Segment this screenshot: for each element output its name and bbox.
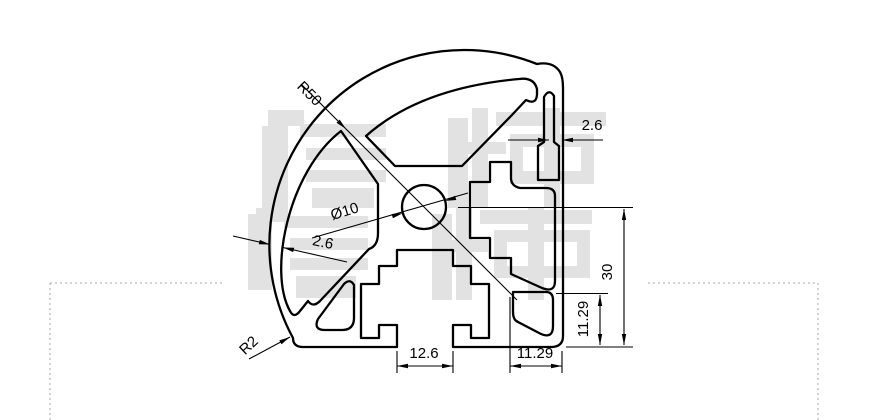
watermark-block [284,216,368,228]
dimension-label-height: 30 [599,264,616,281]
watermark-block [472,108,488,208]
arrow-30-bottom [622,334,626,345]
watermark-block [581,134,594,184]
dimension-label-right-offset: 11.29 [575,301,592,337]
arrow-r2 [279,337,290,344]
arrow-wall-left-b [283,248,294,253]
watermark-block [494,266,590,278]
arrow-126-right [442,364,453,368]
arrow-1129b-left [510,364,521,368]
technical-drawing: R502.6Ø102.63011.2911.2912.6R2 [0,0,880,420]
arrow-1129r-top [598,295,602,306]
watermark-block [494,230,507,278]
dimension-label-slot-width: 12.6 [409,345,438,362]
watermark-block [268,110,304,126]
dimension-label-bottom-offset: 11.29 [517,345,553,362]
watermark-block [544,108,560,208]
watermark-block [577,230,590,278]
watermark-block [494,230,590,242]
drawing-page: R502.6Ø102.63011.2911.2912.6R2 [0,0,880,420]
dimension-label-r50: R50 [293,78,324,109]
arrow-30-top [622,209,626,220]
arrow-126-left [397,364,408,368]
dimension-label-wall-top: 2.6 [582,117,603,134]
arrow-1129r-bottom [598,334,602,345]
arrow-dia10-left [392,213,403,218]
arrow-1129b-right [551,364,562,368]
